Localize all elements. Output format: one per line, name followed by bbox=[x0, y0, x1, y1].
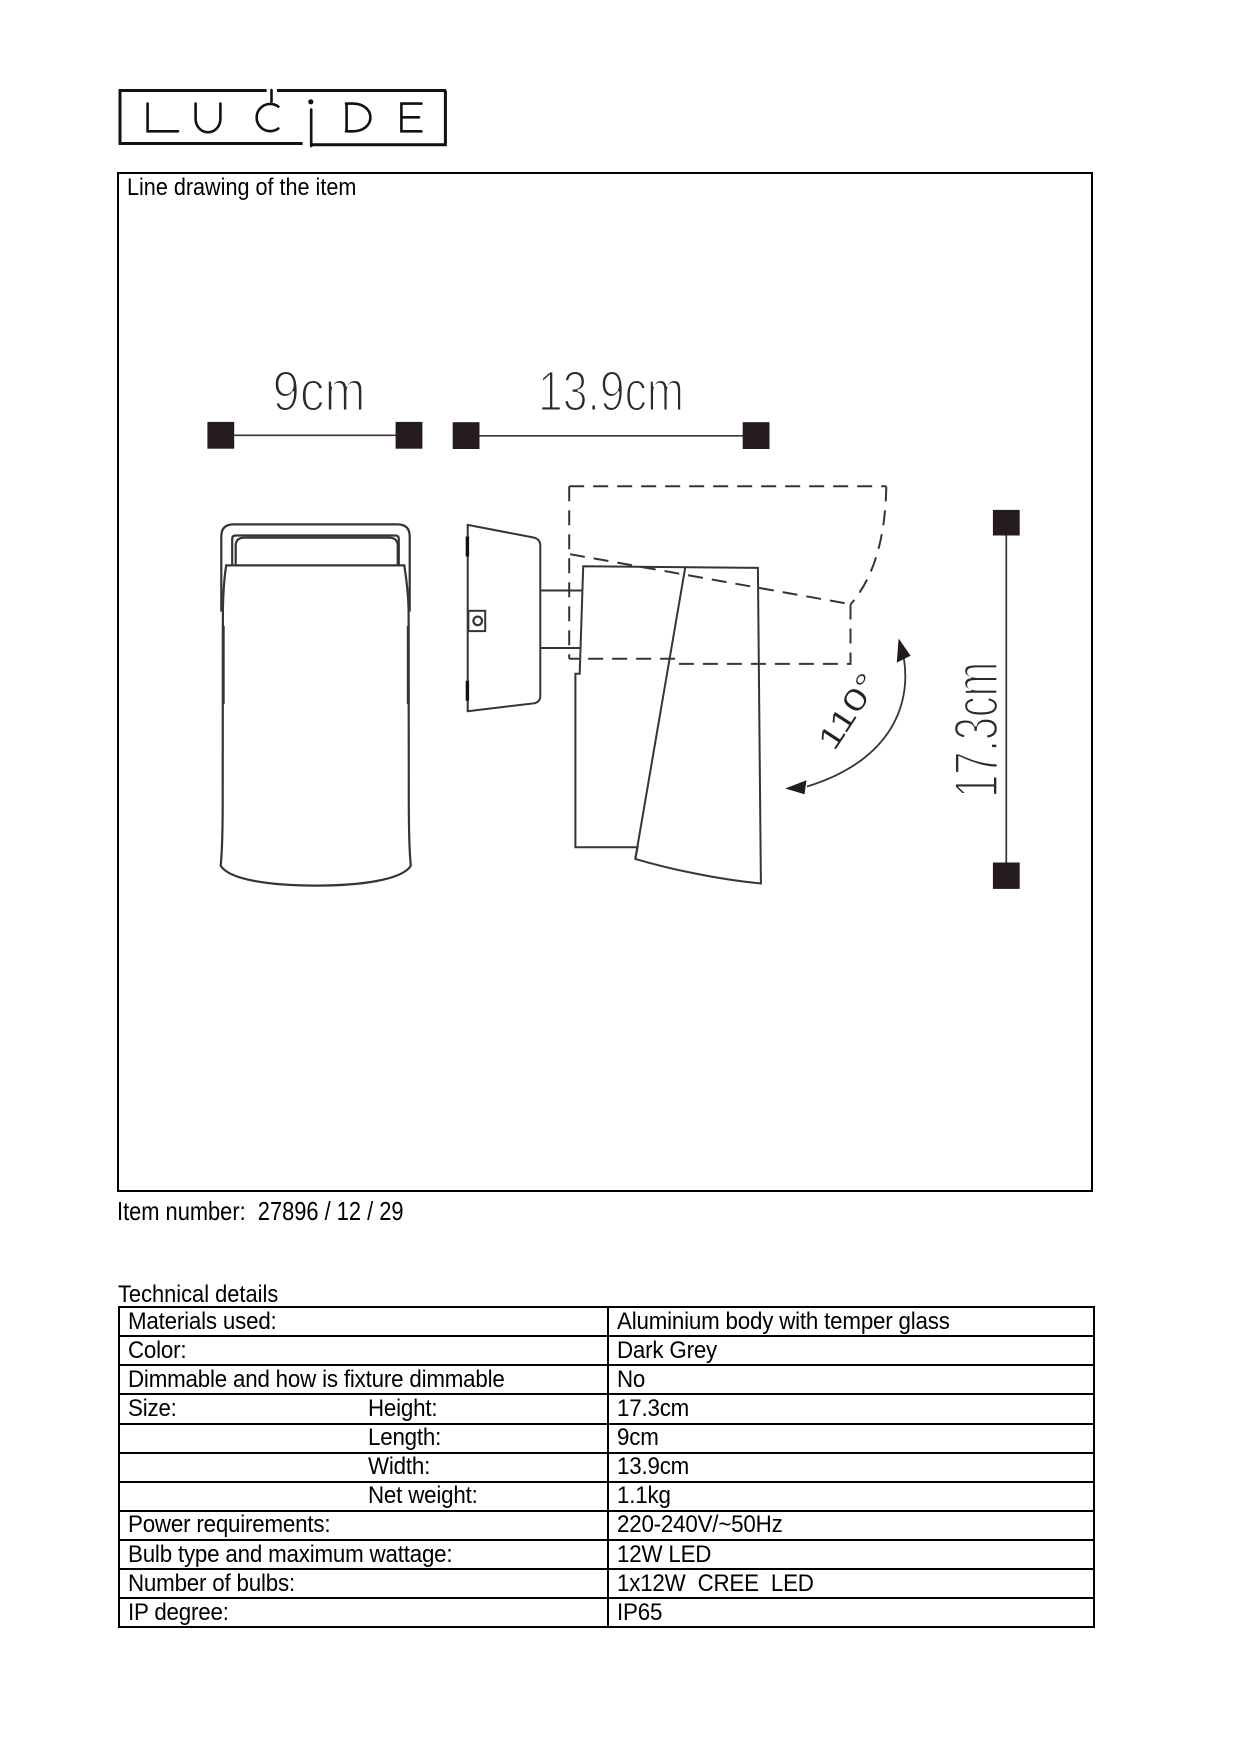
svg-text:13.9cm: 13.9cm bbox=[538, 360, 684, 424]
svg-text:17.3cm: 17.3cm bbox=[943, 662, 1012, 798]
svg-text:110°: 110° bbox=[811, 667, 886, 757]
svg-text:9cm: 9cm bbox=[273, 360, 366, 424]
